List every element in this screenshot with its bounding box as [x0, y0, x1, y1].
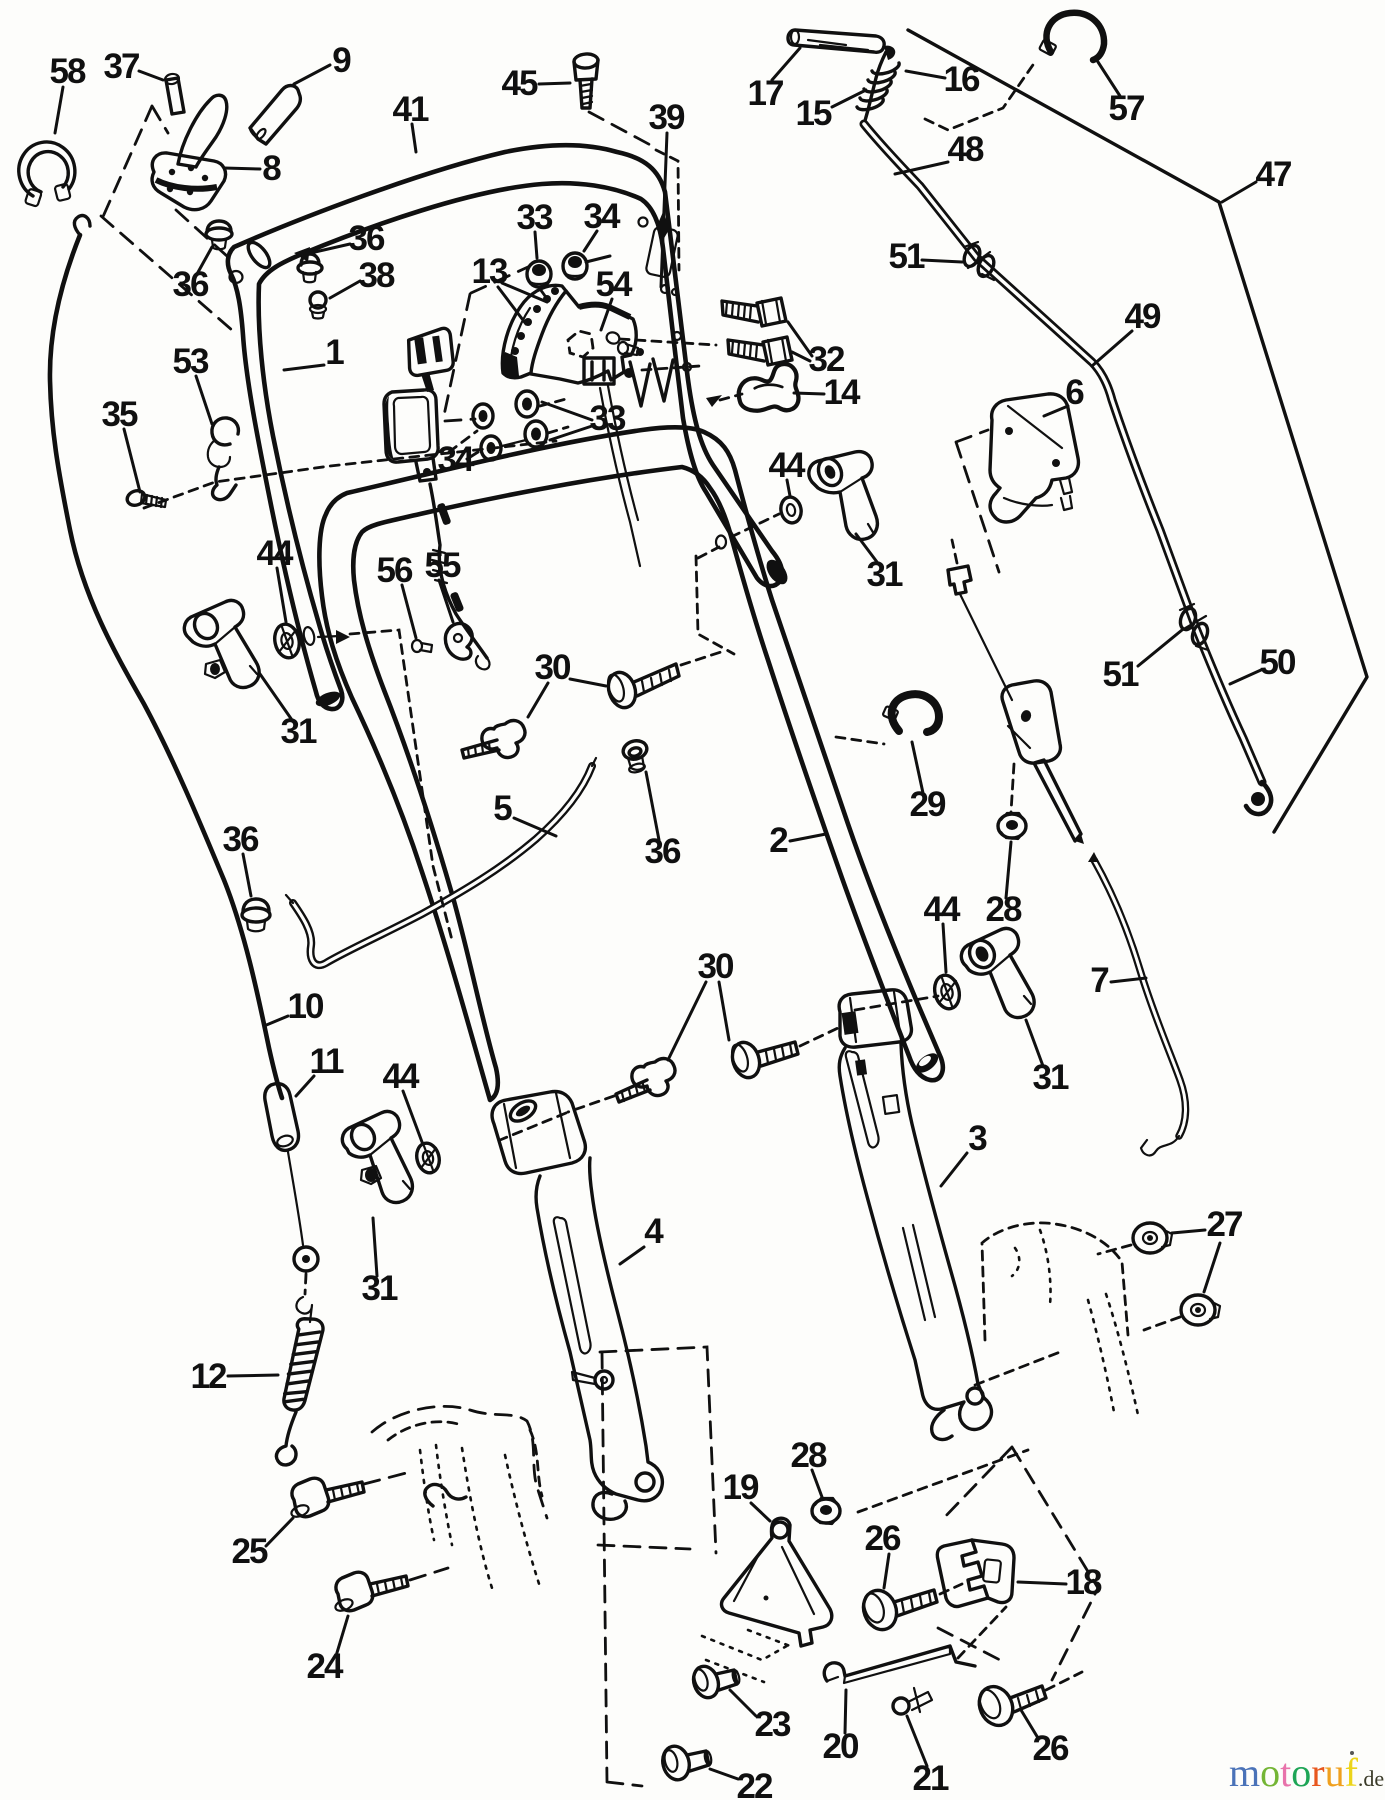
svg-text:50: 50	[1260, 643, 1296, 682]
svg-text:33: 33	[590, 399, 626, 438]
svg-text:9: 9	[332, 41, 351, 80]
svg-text:30: 30	[698, 947, 734, 986]
svg-text:28: 28	[791, 1436, 827, 1475]
svg-text:25: 25	[232, 1532, 268, 1571]
svg-text:55: 55	[425, 546, 461, 585]
svg-text:36: 36	[645, 832, 681, 871]
svg-text:2: 2	[769, 821, 788, 860]
svg-text:36: 36	[349, 219, 385, 258]
svg-text:57: 57	[1109, 89, 1144, 128]
svg-text:30: 30	[535, 648, 571, 687]
svg-text:20: 20	[823, 1727, 859, 1766]
svg-text:44: 44	[383, 1057, 420, 1096]
svg-text:48: 48	[948, 130, 984, 169]
svg-text:3: 3	[968, 1119, 987, 1158]
svg-text:23: 23	[755, 1705, 791, 1744]
svg-text:29: 29	[910, 785, 946, 824]
svg-text:19: 19	[723, 1468, 759, 1507]
svg-text:37: 37	[104, 47, 139, 86]
svg-text:12: 12	[191, 1357, 227, 1396]
svg-text:56: 56	[377, 551, 413, 590]
svg-text:51: 51	[1103, 655, 1139, 694]
svg-text:31: 31	[867, 555, 903, 594]
svg-text:18: 18	[1066, 1563, 1102, 1602]
svg-text:13: 13	[472, 252, 508, 291]
svg-text:14: 14	[824, 373, 861, 412]
svg-text:34: 34	[438, 440, 475, 479]
svg-text:36: 36	[223, 820, 259, 859]
svg-text:39: 39	[649, 98, 685, 137]
svg-text:15: 15	[796, 94, 832, 133]
svg-text:45: 45	[502, 64, 538, 103]
svg-text:26: 26	[865, 1519, 901, 1558]
svg-text:31: 31	[362, 1269, 398, 1308]
svg-text:21: 21	[913, 1759, 949, 1798]
svg-text:17: 17	[748, 74, 783, 113]
svg-text:58: 58	[50, 52, 86, 91]
svg-text:16: 16	[944, 60, 980, 99]
svg-text:8: 8	[262, 149, 281, 188]
svg-text:54: 54	[596, 265, 633, 304]
svg-text:38: 38	[359, 256, 395, 295]
svg-text:47: 47	[1256, 155, 1291, 194]
svg-text:4: 4	[644, 1212, 664, 1251]
svg-text:7: 7	[1090, 961, 1108, 1000]
svg-text:53: 53	[173, 342, 209, 381]
svg-text:31: 31	[281, 712, 317, 751]
svg-text:36: 36	[173, 265, 209, 304]
svg-text:28: 28	[986, 890, 1022, 929]
svg-text:31: 31	[1033, 1058, 1069, 1097]
svg-text:35: 35	[102, 395, 138, 434]
svg-text:26: 26	[1033, 1729, 1069, 1768]
svg-text:5: 5	[493, 789, 512, 828]
svg-text:49: 49	[1125, 297, 1161, 336]
svg-text:34: 34	[584, 197, 621, 236]
svg-text:1: 1	[325, 333, 344, 372]
svg-text:51: 51	[889, 237, 925, 276]
svg-text:10: 10	[288, 987, 324, 1026]
svg-text:44: 44	[257, 534, 294, 573]
svg-text:22: 22	[737, 1767, 773, 1800]
svg-text:27: 27	[1207, 1205, 1242, 1244]
